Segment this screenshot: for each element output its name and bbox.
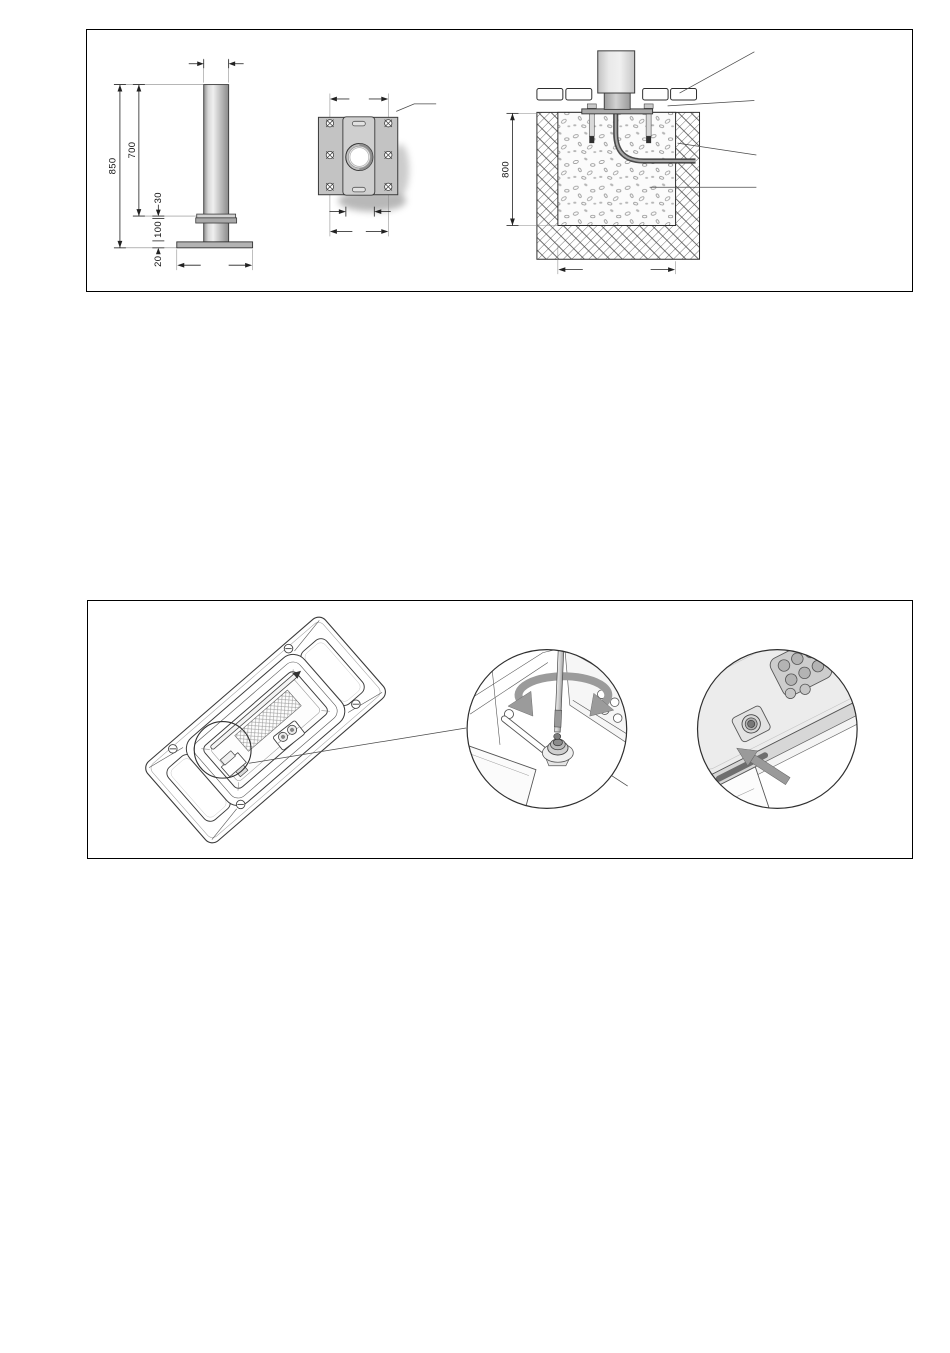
plate-leader-line xyxy=(396,104,436,111)
pole xyxy=(177,85,253,248)
paver xyxy=(537,89,563,100)
pole-collar xyxy=(197,214,236,218)
base-isometric-view xyxy=(142,613,466,846)
bolt-hole xyxy=(326,183,333,190)
pointer-line xyxy=(612,776,628,786)
figure-frame-bottom xyxy=(87,600,913,859)
slot-hole xyxy=(352,121,365,126)
figure-frame-top: 850 700 30 100 xyxy=(86,29,913,292)
dim-30-label: 30 xyxy=(153,192,164,203)
dim-100-label: 100 xyxy=(153,221,164,238)
dimension-pole-diameter xyxy=(189,59,244,68)
detail-view-latch-slide xyxy=(642,604,912,846)
dimension-chain-30-100-20: 30 100 20 xyxy=(152,192,164,267)
plate-level-leader-line xyxy=(668,100,755,105)
dimension-base-plate-width xyxy=(177,263,252,268)
screw-icon xyxy=(169,745,178,754)
mounting-plate-top-view xyxy=(318,94,436,237)
dim-700-label: 700 xyxy=(127,142,138,159)
installation-drawing: 850 700 30 100 xyxy=(87,30,912,291)
manual-page: 850 700 30 100 xyxy=(0,0,950,1353)
dimension-outer-bottom xyxy=(330,229,388,234)
dimension-overall-height: 850 xyxy=(107,85,125,248)
base-unit-details-drawing xyxy=(88,601,912,858)
foundation-section-view: 800 xyxy=(500,51,756,274)
pole-elevation-view: 850 700 30 100 xyxy=(107,59,252,270)
pole-hole xyxy=(346,144,373,171)
bolt-hole xyxy=(326,151,333,158)
screw-icon xyxy=(236,800,245,809)
paver xyxy=(671,89,697,100)
dim-850-label: 850 xyxy=(107,158,118,175)
bolt-hole xyxy=(385,183,392,190)
post-body xyxy=(598,51,635,93)
paver-leader-line xyxy=(680,52,755,93)
bolt-hole xyxy=(385,120,392,127)
dim-800-label: 800 xyxy=(500,161,511,178)
pole-base-plate xyxy=(177,242,253,248)
dim-20-label: 20 xyxy=(153,256,164,267)
dimension-pole-height: 700 xyxy=(127,85,145,216)
slot-hole xyxy=(352,187,365,192)
bolt-hole xyxy=(385,151,392,158)
screw-icon xyxy=(284,644,293,653)
detail-view-screw-tightening xyxy=(463,649,632,809)
dimension-hole-spacing-top xyxy=(330,97,388,102)
paver xyxy=(643,89,668,100)
bolt-hole xyxy=(326,120,333,127)
post-neck xyxy=(604,93,630,109)
screw-icon xyxy=(352,700,361,709)
paver xyxy=(566,89,592,100)
